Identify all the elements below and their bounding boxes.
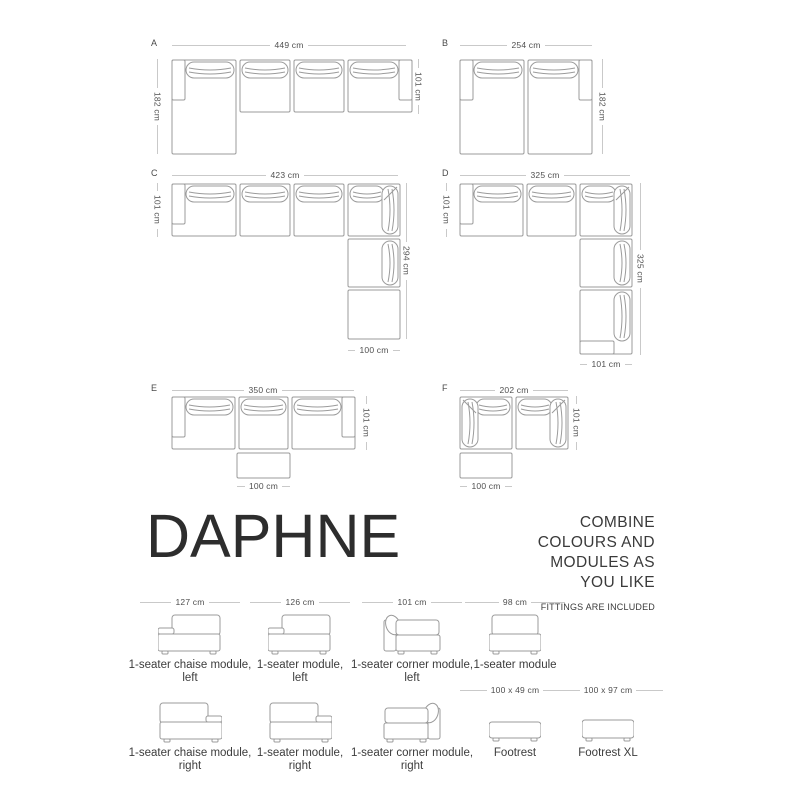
dim-line [282,486,290,487]
dim-line [640,288,641,355]
dim-line [625,364,632,365]
caption-line: 1-seater chaise module, [129,659,252,672]
dim-line [602,59,603,88]
dim-line [460,45,507,46]
dim-line [172,390,244,391]
dimension-left: 101 cm [151,183,163,237]
dim-label: 101 cm [442,191,451,228]
dim-label: 294 cm [402,242,411,279]
dimension-top: 449 cm [172,41,406,50]
module-caption: 1-seater module [473,659,556,672]
dim-line [553,690,580,691]
module-caption: 1-seater chaise module, left [129,659,252,685]
dim-line [393,350,400,351]
dim-label: 101 cm [414,68,423,105]
dim-label: 101 cm [572,404,581,441]
module-dimension: 101 cm [362,596,462,608]
config-letter: C [151,169,158,178]
config-letter: D [442,169,449,178]
sofa-top-view [458,394,570,480]
dim-line [460,486,467,487]
dim-label: 101 cm [362,404,371,441]
dimension-top: 325 cm [460,171,630,180]
dim-label: 182 cm [598,88,607,125]
caption-line: right [351,760,473,773]
dim-label: 182 cm [153,88,162,125]
module-seater: 98 cm 1-seater module [450,596,580,672]
dim-line [580,364,587,365]
module-dimension: 98 cm [465,596,565,608]
sofa-top-view [458,181,634,357]
dim-line [362,602,393,603]
dimension-bottom: 100 cm [348,346,400,355]
caption-line: Footrest XL [578,747,637,760]
module-dimension: 127 cm [140,596,240,608]
dim-line [237,486,245,487]
dim-line [576,442,577,450]
dimension-right: 101 cm [360,396,372,450]
caption-line: 1-seater module, [257,747,343,760]
sofa-top-view [170,57,414,157]
spacer [250,684,350,696]
dim-label: 100 x 97 cm [580,686,637,695]
dim-line [172,175,266,176]
dimension-left: 101 cm [440,183,452,237]
tagline-line: YOU LIKE [405,573,655,593]
tagline-line: MODULES AS [405,553,655,573]
module-footrest-xl: 100 x 97 cm Footrest XL [543,684,673,760]
dim-label: 254 cm [507,41,544,50]
module-front-view [489,696,541,744]
dimension-bottom: 100 cm [237,482,290,491]
dim-line [348,350,355,351]
dim-line [157,59,158,88]
dim-line [157,183,158,191]
module-front-view [582,696,634,744]
caption-line: 1-seater chaise module, [129,747,252,760]
dim-line [366,442,367,450]
module-caption: 1-seater module, right [257,747,343,773]
dim-line [172,45,270,46]
dim-line [545,45,592,46]
dim-line [157,125,158,154]
dim-line [640,183,641,250]
dim-line [446,183,447,191]
dim-label: 100 x 49 cm [487,686,544,695]
dim-label: 98 cm [499,598,531,607]
dimension-top: 254 cm [460,41,592,50]
dim-line [366,396,367,404]
sofa-top-view [170,181,402,345]
dim-label: 127 cm [171,598,208,607]
dimension-top: 423 cm [172,171,398,180]
caption-line: right [257,760,343,773]
dim-line [446,229,447,237]
dim-label: 449 cm [270,41,307,50]
dim-line [533,390,568,391]
config-letter: F [442,384,448,393]
dim-line [460,690,487,691]
module-front-view [383,696,441,744]
dim-line [636,690,663,691]
module-dimension: 100 x 97 cm [553,684,663,696]
dim-line [282,390,354,391]
module-caption: Footrest [494,747,536,760]
product-title: DAPHNE [146,506,400,567]
sofa-top-view [458,57,594,157]
dim-line [460,175,526,176]
tagline-line: COLOURS AND [405,533,655,553]
dim-line [418,105,419,114]
dim-line [564,175,630,176]
dim-label: 101 cm [393,598,430,607]
config-letter: A [151,39,157,48]
spacer [362,684,462,696]
dim-line [304,175,398,176]
dim-line [602,125,603,154]
dim-label: 100 cm [467,482,504,491]
dimension-bottom: 101 cm [580,360,632,369]
dimension-left: 182 cm [151,59,163,154]
dim-line [505,486,512,487]
caption-line: 1-seater module [473,659,556,672]
module-front-view [489,608,541,656]
spacer [140,684,240,696]
sofa-top-view [170,394,358,480]
module-front-view [268,608,332,656]
module-front-view [383,608,441,656]
dim-line [140,602,171,603]
caption-line: 1-seater module, [257,659,343,672]
dimension-right: 182 cm [596,59,608,154]
module-caption: 1-seater chaise module, right [129,747,252,773]
module-caption: Footrest XL [578,747,637,760]
catalog-page: A 449 cm 182 cm 101 cm B 254 cm [0,0,800,800]
module-dimension: 126 cm [250,596,350,608]
dim-label: 100 cm [355,346,392,355]
dim-label: 101 cm [153,191,162,228]
dim-line [250,602,281,603]
module-front-view [158,608,222,656]
dimension-right: 101 cm [570,396,582,450]
dim-label: 423 cm [266,171,303,180]
dimension-right: 101 cm [412,59,424,114]
module-seater-left: 126 cm 1-seater module, left [235,596,365,685]
dim-label: 100 cm [245,482,282,491]
dimension-bottom: 100 cm [460,482,512,491]
tagline-line: COMBINE [405,513,655,533]
dim-line [460,390,495,391]
dim-label: 325 cm [526,171,563,180]
dim-label: 126 cm [281,598,318,607]
config-letter: E [151,384,157,393]
caption-line: right [129,760,252,773]
caption-line: Footrest [494,747,536,760]
dim-line [465,602,499,603]
module-seater-right: 1-seater module, right [235,684,365,773]
dim-line [406,280,407,339]
config-letter: B [442,39,448,48]
module-front-view [268,696,332,744]
dim-label: 101 cm [587,360,624,369]
dim-line [418,59,419,68]
dim-line [576,396,577,404]
dim-line [406,183,407,242]
dim-line [308,45,406,46]
dim-line [157,229,158,237]
dim-label: 325 cm [636,250,645,287]
module-caption: 1-seater module, left [257,659,343,685]
dim-line [531,602,565,603]
dim-line [319,602,350,603]
dimension-right: 294 cm [400,183,412,339]
module-front-view [158,696,222,744]
dimension-right: 325 cm [634,183,646,355]
